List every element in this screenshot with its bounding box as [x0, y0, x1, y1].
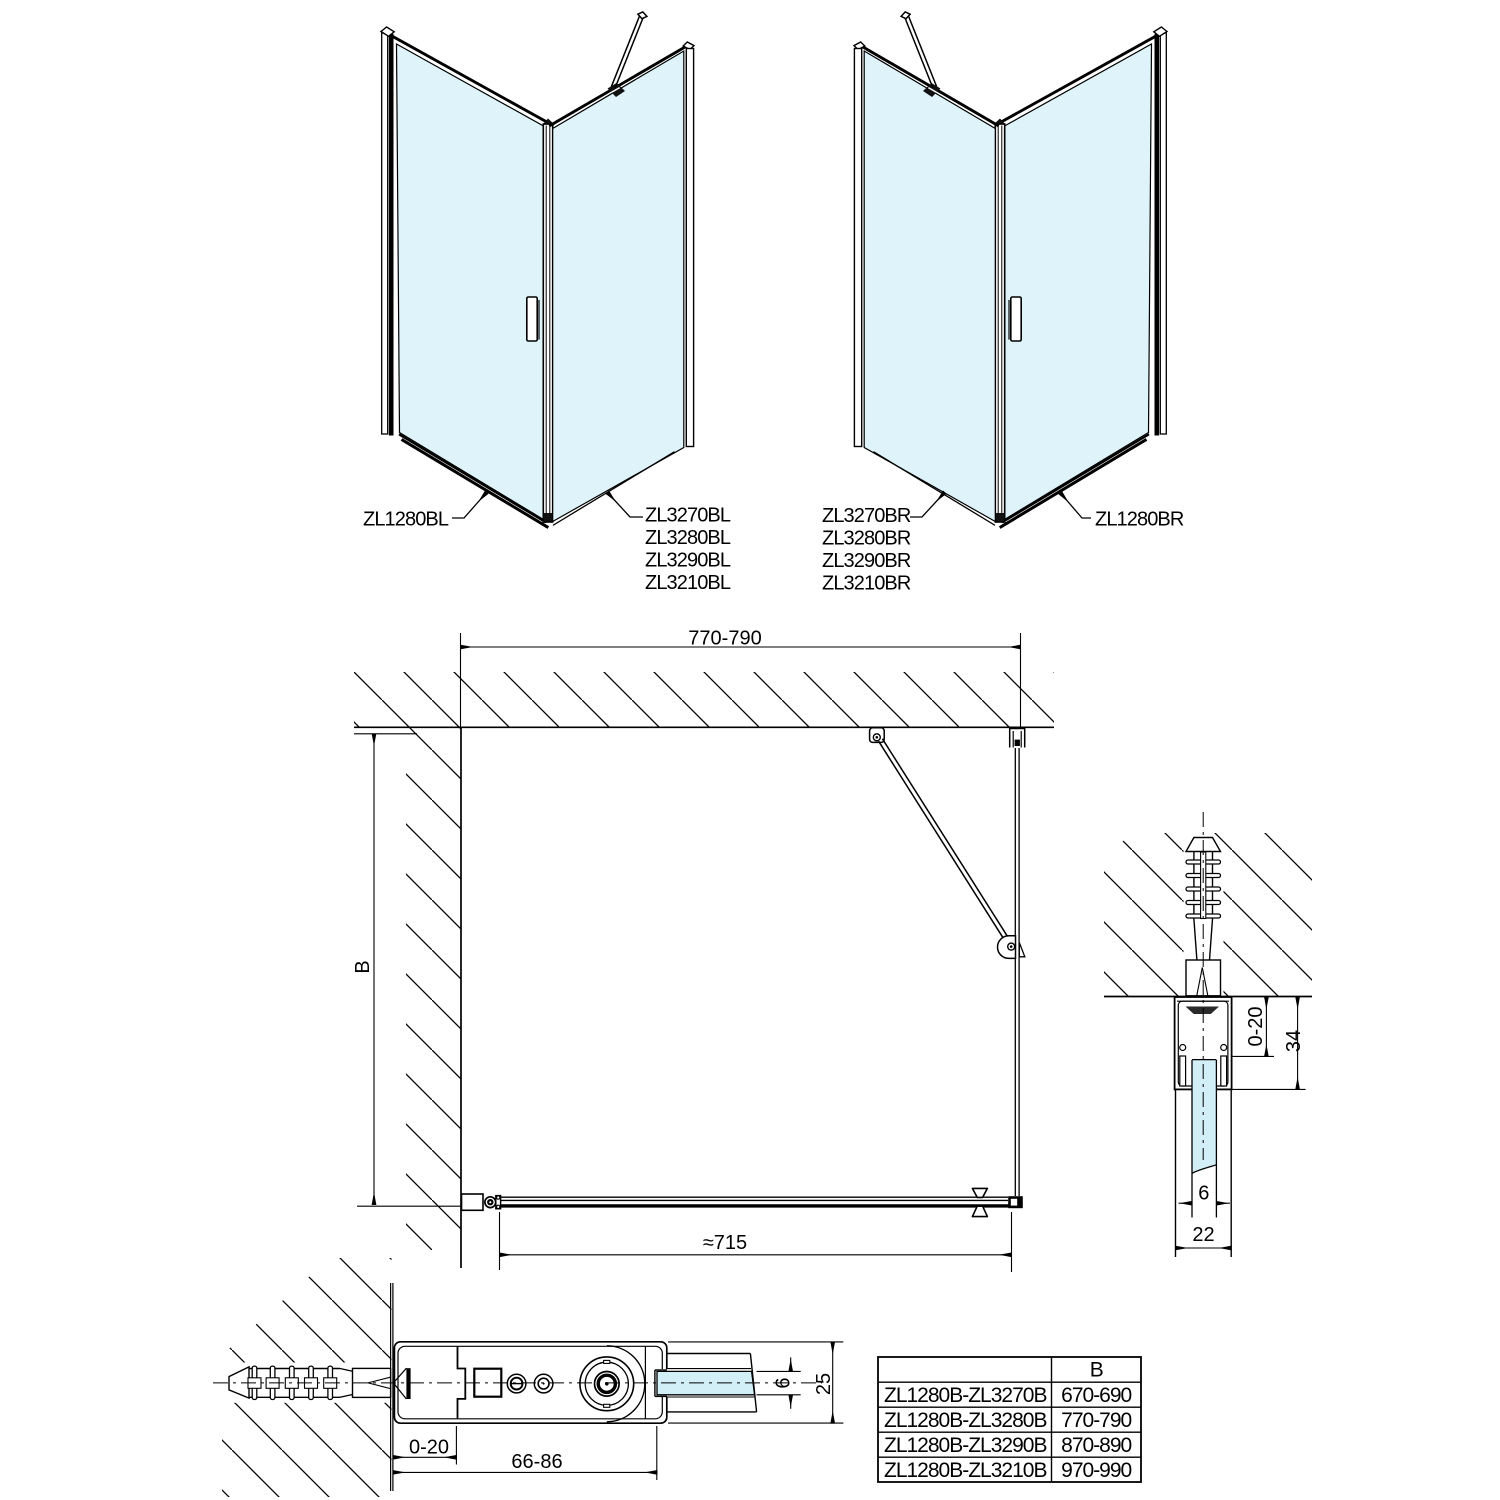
svg-text:770-790: 770-790 [1061, 1409, 1131, 1432]
svg-text:≈715: ≈715 [703, 1232, 747, 1254]
svg-text:ZL3210BL: ZL3210BL [645, 572, 731, 594]
svg-text:ZL1280B-ZL3210B: ZL1280B-ZL3210B [884, 1459, 1046, 1482]
svg-text:ZL1280B-ZL3270B: ZL1280B-ZL3270B [884, 1384, 1046, 1407]
svg-text:770-790: 770-790 [688, 628, 761, 650]
svg-text:ZL3280BL: ZL3280BL [645, 527, 731, 549]
svg-text:ZL3270BL: ZL3270BL [645, 505, 731, 527]
svg-text:ZL3280BR: ZL3280BR [822, 528, 911, 550]
svg-text:ZL1280BR: ZL1280BR [1095, 509, 1184, 531]
svg-text:25: 25 [813, 1373, 835, 1395]
svg-text:34: 34 [1283, 1030, 1305, 1052]
svg-text:0-20: 0-20 [1245, 1006, 1267, 1046]
svg-text:0-20: 0-20 [409, 1437, 449, 1459]
svg-text:B: B [352, 960, 374, 973]
svg-text:ZL3270BR: ZL3270BR [822, 505, 911, 527]
svg-text:ZL3290BL: ZL3290BL [645, 550, 731, 572]
svg-text:ZL1280BL: ZL1280BL [363, 509, 449, 531]
svg-text:ZL1280B-ZL3280B: ZL1280B-ZL3280B [884, 1409, 1046, 1432]
svg-text:870-890: 870-890 [1061, 1434, 1131, 1457]
svg-text:970-990: 970-990 [1061, 1459, 1131, 1482]
svg-text:22: 22 [1192, 1224, 1214, 1246]
svg-text:ZL3290BR: ZL3290BR [822, 550, 911, 572]
svg-text:B: B [1090, 1359, 1103, 1382]
svg-text:6: 6 [773, 1377, 795, 1388]
svg-text:ZL1280B-ZL3290B: ZL1280B-ZL3290B [884, 1434, 1046, 1457]
svg-text:670-690: 670-690 [1061, 1384, 1131, 1407]
svg-text:6: 6 [1198, 1183, 1209, 1205]
svg-text:ZL3210BR: ZL3210BR [822, 573, 911, 595]
svg-text:66-86: 66-86 [511, 1451, 562, 1473]
